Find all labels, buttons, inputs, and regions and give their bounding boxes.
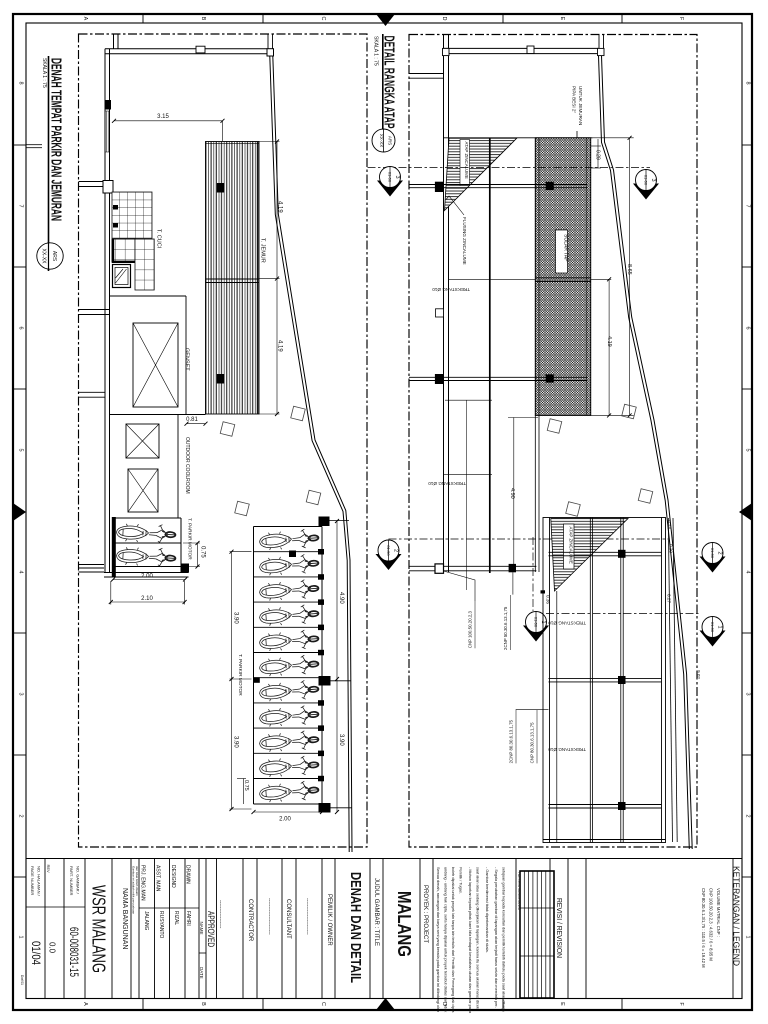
svg-text:Semua denah, rancangan dan kar: Semua denah, rancangan dan karya seni ya… — [436, 867, 440, 1012]
svg-text:3: 3 — [18, 692, 24, 695]
svg-text:TREKSTANG Ø10: TREKSTANG Ø10 — [548, 620, 586, 625]
svg-text:E: E — [559, 17, 565, 21]
svg-text:B: B — [200, 17, 206, 21]
svg-text:01-50: 01-50 — [386, 545, 391, 556]
svg-text:JUDUL GAMBAR : TITLE: JUDUL GAMBAR : TITLE — [373, 878, 379, 946]
svg-text:PAGE NUMBER: PAGE NUMBER — [30, 866, 35, 895]
svg-text:ASST. MAN: ASST. MAN — [155, 865, 161, 892]
svg-text:2.10: 2.10 — [141, 596, 153, 602]
svg-text:3.90: 3.90 — [233, 612, 239, 624]
svg-text:6: 6 — [18, 326, 24, 329]
svg-text:RUSYANTO: RUSYANTO — [158, 911, 164, 938]
svg-text:5: 5 — [745, 448, 751, 451]
svg-text:8: 8 — [18, 81, 24, 84]
svg-text:01-50: 01-50 — [533, 617, 538, 628]
svg-text:- Gambar berdimensi tidak dip: - Gambar berdimensi tidak diperkenankan … — [485, 867, 489, 953]
svg-text:3.90: 3.90 — [338, 734, 344, 746]
svg-text:DATE: DATE — [199, 967, 204, 979]
svg-text:NAME: NAME — [199, 922, 204, 935]
svg-text:TREKSTANG Ø10: TREKSTANG Ø10 — [428, 481, 466, 486]
svg-text:SOLAR TAP: SOLAR TAP — [563, 234, 569, 262]
svg-text:----------------------: ---------------------- — [304, 898, 310, 935]
svg-text:01-50: 01-50 — [387, 172, 392, 183]
svg-text:boleh dipakai untuk proyek lai: boleh dipakai untuk proyek lain tanpa iz… — [451, 867, 455, 1013]
svg-text:7: 7 — [745, 204, 751, 207]
svg-text:0.81: 0.81 — [186, 417, 198, 423]
svg-text:1: 1 — [18, 935, 24, 938]
svg-text:CNP 100.50.20.2,3 : 4.632 / 6: CNP 100.50.20.2,3 : 4.632 / 6 = 8.05 M — [709, 888, 714, 961]
svg-text:- Mohon laporkan kepada pihak: - Mohon laporkan kepada pihak kami bila … — [468, 867, 472, 1014]
svg-text:0.24: 0.24 — [667, 520, 672, 529]
svg-text:0.29: 0.29 — [595, 150, 601, 160]
svg-text:XX-XX: XX-XX — [41, 248, 47, 264]
svg-text:XX-XX: XX-XX — [379, 134, 384, 148]
svg-text:3.15: 3.15 — [157, 114, 169, 120]
svg-text:PART. NUMBER: PART. NUMBER — [69, 866, 74, 896]
svg-text:4: 4 — [18, 570, 24, 573]
svg-text:2CNP 50.30.6.13.1,75: 2CNP 50.30.6.13.1,75 — [503, 606, 508, 650]
svg-text:4.19: 4.19 — [277, 201, 283, 213]
svg-text:ARS: ARS — [388, 136, 393, 145]
svg-text:- Segala perubahan gambar di: - Segala perubahan gambar di lapangan ak… — [494, 867, 498, 1009]
svg-text:C: C — [320, 1002, 326, 1006]
svg-text:T. JEMUR: T. JEMUR — [260, 238, 266, 263]
svg-text:CNP 100.50.20.2,3: CNP 100.50.20.2,3 — [468, 610, 473, 648]
svg-text:RIZAL: RIZAL — [173, 911, 179, 925]
svg-text:0.75: 0.75 — [200, 546, 206, 558]
svg-text:C: C — [320, 17, 326, 21]
svg-text:4.19: 4.19 — [277, 340, 283, 352]
svg-text:1: 1 — [745, 935, 751, 938]
svg-text:0.20: 0.20 — [669, 544, 674, 553]
svg-text:Pemilik / Tugas.: Pemilik / Tugas. — [459, 867, 463, 894]
svg-text:01/04: 01/04 — [29, 941, 43, 965]
svg-text:A: A — [82, 1002, 88, 1006]
svg-text:UNTUK JEMURAN: UNTUK JEMURAN — [578, 86, 583, 125]
svg-text:SKALA 1 : 75: SKALA 1 : 75 — [373, 36, 379, 66]
svg-text:SKALA 1 : 75: SKALA 1 : 75 — [41, 58, 47, 88]
svg-text:0.0: 0.0 — [48, 942, 57, 954]
svg-text:3: 3 — [745, 692, 751, 695]
svg-text:0.36: 0.36 — [546, 595, 551, 604]
svg-text:2: 2 — [18, 814, 24, 817]
svg-text:undang - undang hak cipta, ser: undang - undang hak cipta, serta hanya d… — [444, 867, 448, 1012]
svg-text:CNP 80.30.6.13.1,75: CNP 80.30.6.13.1,75 — [530, 722, 535, 763]
svg-text:A: A — [82, 17, 88, 21]
svg-text:T. PARKIR MOTOR: T. PARKIR MOTOR — [187, 518, 193, 560]
svg-text:2.00: 2.00 — [141, 574, 153, 580]
svg-text:CONSULTANT: CONSULTANT — [285, 899, 291, 939]
svg-text:WSR MALANG: WSR MALANG — [89, 885, 109, 973]
svg-text:REV: REV — [46, 865, 51, 874]
svg-text:2CNP 80.30.6.13.1,75: 2CNP 80.30.6.13.1,75 — [509, 719, 514, 763]
svg-text:FLUSING ZINCALUME: FLUSING ZINCALUME — [462, 217, 467, 265]
svg-text:ARS: ARS — [51, 251, 57, 262]
svg-text:Dwf 01: Dwf 01 — [20, 975, 24, 985]
svg-text:CONTRACTOR: CONTRACTOR — [247, 899, 253, 942]
svg-text:NO. GAMBAR /: NO. GAMBAR / — [76, 866, 81, 895]
svg-text:setujuan gambar kepada konsult: setujuan gambar kepada konsultan dan pem… — [502, 867, 506, 1012]
svg-text:2.00: 2.00 — [279, 817, 291, 823]
svg-text:T. PARKIR MOTOR: T. PARKIR MOTOR — [237, 654, 243, 696]
svg-text:6: 6 — [745, 326, 751, 329]
svg-text:3: 3 — [394, 175, 400, 178]
svg-text:MALANG: MALANG — [394, 891, 414, 957]
svg-text:FAHRI: FAHRI — [185, 911, 191, 926]
svg-text:1: 1 — [717, 625, 723, 628]
svg-text:4.19: 4.19 — [606, 336, 612, 347]
svg-text:2: 2 — [393, 549, 399, 552]
svg-text:Gambar ini adalah milik perusa: Gambar ini adalah milik perusahaan — [132, 866, 136, 914]
svg-text:DESIGND: DESIGND — [170, 865, 176, 888]
svg-text:JALANG: JALANG — [143, 911, 149, 931]
svg-text:E: E — [559, 1002, 565, 1006]
svg-text:8.65: 8.65 — [626, 264, 632, 275]
svg-text:KETERANGAN / LEGEND: KETERANGAN / LEGEND — [732, 866, 741, 966]
svg-text:PEMILIK / OWNER: PEMILIK / OWNER — [326, 894, 332, 946]
svg-text:8: 8 — [745, 81, 751, 84]
svg-text:4.90: 4.90 — [338, 592, 344, 604]
svg-text:ATAP ZINCALUME: ATAP ZINCALUME — [569, 527, 574, 564]
svg-text:DENAH TEMPAT PARKIR DAN JEMURA: DENAH TEMPAT PARKIR DAN JEMURAN — [48, 58, 65, 221]
svg-text:2: 2 — [717, 551, 723, 554]
svg-text:-----------------: ----------------- — [218, 900, 224, 929]
svg-text:D: D — [441, 17, 447, 21]
svg-text:2: 2 — [745, 814, 751, 817]
svg-text:CNP 80.30.6.1.3/1,75 : 110.5 /: CNP 80.30.6.1.3/1,75 : 110.5 / 6 = 19.42… — [701, 888, 706, 968]
svg-text:VOLUME MATRIAL CNP :: VOLUME MATRIAL CNP : — [716, 888, 721, 937]
svg-text:7: 7 — [18, 204, 24, 207]
svg-text:DRAWN: DRAWN — [185, 865, 191, 884]
svg-text:OUTDOOR COOLROOM: OUTDOOR COOLROOM — [184, 437, 190, 494]
svg-text:NO. HALAMAN /: NO. HALAMAN / — [37, 866, 42, 897]
svg-text:TGL. DATE URAIAN REVISI: TGL. DATE URAIAN REVISI — [517, 872, 521, 910]
svg-text:ATAP ZINCALUME: ATAP ZINCALUME — [464, 142, 469, 179]
svg-text:01-50: 01-50 — [710, 548, 715, 559]
svg-text:9.02: 9.02 — [696, 670, 701, 679]
svg-text:DENAH DAN DETAIL: DENAH DAN DETAIL — [347, 872, 364, 983]
svg-text:0.75: 0.75 — [243, 780, 249, 791]
svg-text:TREKSTANG Ø10: TREKSTANG Ø10 — [548, 747, 586, 752]
svg-text:01-50: 01-50 — [710, 622, 715, 633]
svg-text:TREKSTANG Ø10: TREKSTANG Ø10 — [432, 287, 470, 292]
svg-text:4: 4 — [745, 570, 751, 573]
svg-text:01-50: 01-50 — [643, 175, 648, 186]
svg-text:5: 5 — [18, 448, 24, 451]
svg-text:PROYEK : PROJECT: PROYEK : PROJECT — [422, 885, 428, 943]
svg-text:B: B — [200, 1002, 206, 1006]
svg-text:saat akan atau sedang dikerjak: saat akan atau sedang dikerjakan di lapa… — [476, 867, 480, 1009]
svg-text:PRJ. ENG.MAN: PRJ. ENG.MAN — [140, 865, 146, 901]
svg-text:3.90: 3.90 — [233, 736, 239, 748]
svg-text:dan tidak boleh disalin: dan tidak boleh disalin — [135, 866, 139, 896]
svg-text:60-008031-15: 60-008031-15 — [67, 927, 81, 977]
svg-text:T. CUCI: T. CUCI — [156, 229, 162, 249]
svg-text:REVISI / REVISION: REVISI / REVISION — [555, 898, 564, 958]
svg-text:----------------------: ---------------------- — [266, 898, 272, 935]
svg-text:NAMA BANGUNAN: NAMA BANGUNAN — [121, 888, 128, 949]
svg-text:PIPA BESI 2": PIPA BESI 2" — [572, 86, 577, 113]
svg-text:APPROVED: APPROVED — [206, 911, 216, 947]
svg-text:0.27: 0.27 — [667, 594, 672, 603]
svg-text:GENSET: GENSET — [184, 348, 190, 371]
svg-text:4.90: 4.90 — [509, 488, 515, 499]
svg-text:3: 3 — [650, 178, 656, 181]
